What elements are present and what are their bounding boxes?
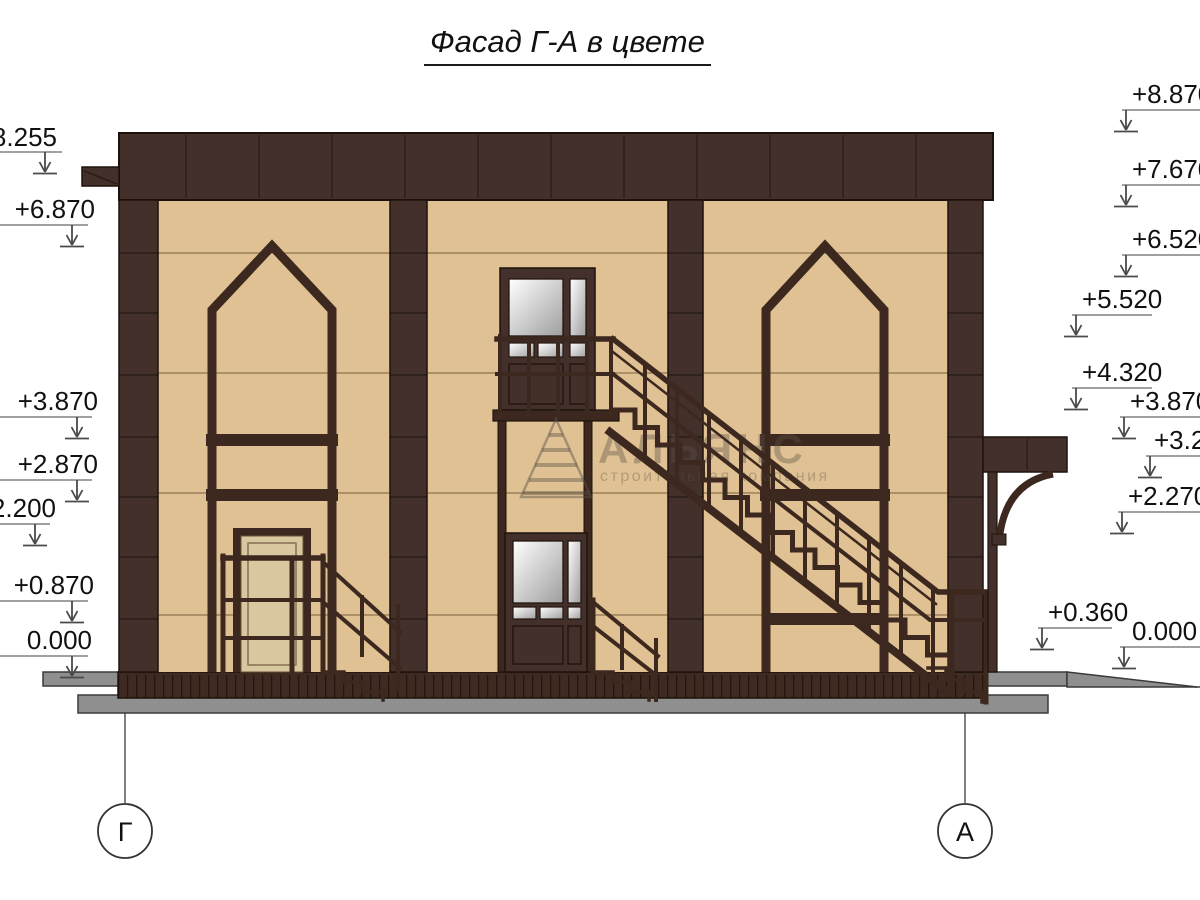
svg-text:+0.870: +0.870: [14, 570, 94, 600]
canopy-slab: [983, 437, 1067, 472]
elevation-marks-left: +8.255 +6.870 +3.870 +2.870 +2.200 +0.87…: [0, 122, 98, 678]
lower-door: [505, 533, 587, 672]
elevation-mark: +5.520: [1064, 284, 1162, 337]
upper-door-glass: [509, 279, 563, 336]
pilaster-mid-left: [390, 200, 427, 672]
canopy: [983, 437, 1067, 672]
facade-drawing-sheet: Фасад Г-А в цвете: [0, 0, 1200, 900]
elevation-mark: +6.870: [0, 194, 95, 247]
svg-text:+3.870: +3.870: [1130, 386, 1200, 416]
svg-text:+2.270: +2.270: [1128, 481, 1200, 511]
elevation-marks-right: +8.870 +7.670 +6.520 +5.520 +4.320 +3.87…: [1030, 79, 1200, 669]
svg-text:+7.670: +7.670: [1132, 154, 1200, 184]
svg-text:+5.520: +5.520: [1082, 284, 1162, 314]
svg-text:+3.270: +3.270: [1154, 425, 1200, 455]
elevation-mark: +7.670: [1114, 154, 1200, 207]
facade-drawing: АЛЬЯНС строительная компания: [0, 0, 1200, 900]
elevation-mark: 0.000: [0, 625, 92, 678]
elevation-mark: +2.270: [1110, 481, 1200, 534]
axis-label-right: А: [956, 817, 974, 847]
svg-text:+2.200: +2.200: [0, 493, 56, 523]
parapet-band: [119, 133, 993, 200]
canopy-post: [988, 472, 997, 672]
axis-label-left: Г: [118, 817, 133, 847]
svg-text:+4.320: +4.320: [1082, 357, 1162, 387]
elevation-mark: +2.200: [0, 493, 56, 546]
svg-text:+2.870: +2.870: [18, 449, 98, 479]
axis-markers: Г А: [98, 804, 992, 858]
svg-text:0.000: 0.000: [1132, 616, 1197, 646]
elevation-mark: +0.360: [1030, 597, 1128, 650]
elevation-mark: +6.520: [1114, 224, 1200, 277]
elevation-mark: +8.255: [0, 122, 62, 174]
pilaster-left-corner: [119, 200, 158, 672]
svg-text:0.000: 0.000: [27, 625, 92, 655]
svg-text:+0.360: +0.360: [1048, 597, 1128, 627]
svg-text:+3.870: +3.870: [18, 386, 98, 416]
canopy-bracket-arc: [999, 474, 1053, 542]
elevation-mark: +3.270: [1138, 425, 1200, 478]
elevation-mark: +8.870: [1114, 79, 1200, 132]
svg-text:+8.870: +8.870: [1132, 79, 1200, 109]
ramp: [1067, 672, 1197, 687]
lower-door-glass: [513, 541, 563, 603]
svg-text:+6.520: +6.520: [1132, 224, 1200, 254]
elevation-mark: +0.870: [0, 570, 94, 623]
svg-text:+8.255: +8.255: [0, 122, 57, 152]
svg-text:+6.870: +6.870: [15, 194, 95, 224]
roof-beam: [82, 167, 119, 186]
elevation-mark: +3.870: [0, 386, 98, 439]
plinth-band: [118, 672, 985, 698]
building: [82, 133, 993, 698]
